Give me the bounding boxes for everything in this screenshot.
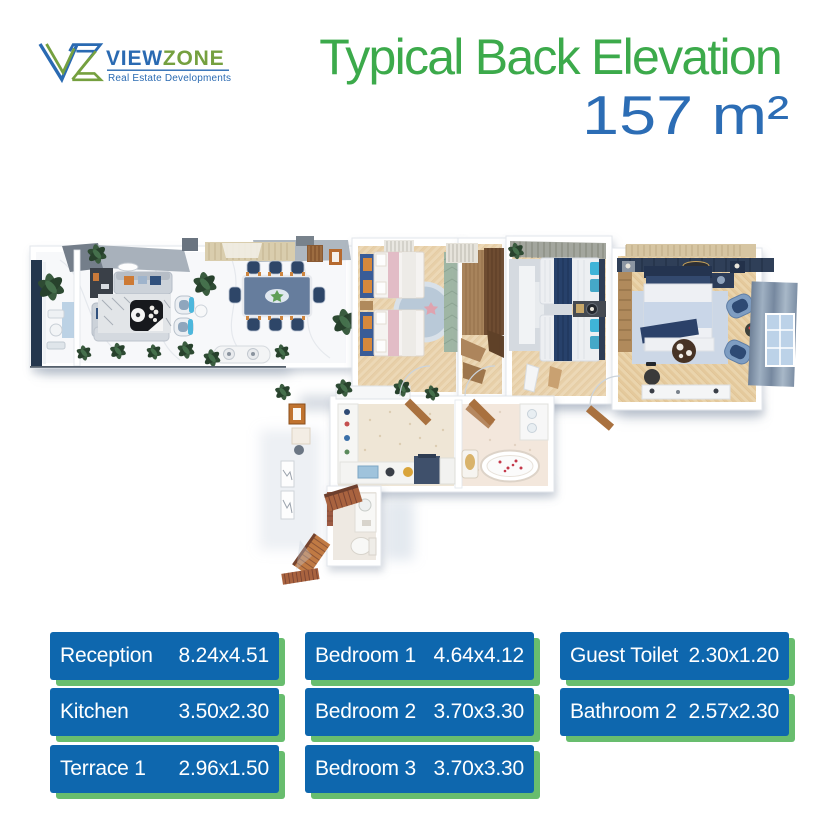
svg-text:Real Estate Developments: Real Estate Developments: [108, 73, 231, 84]
svg-text:VIEWZONE: VIEWZONE: [106, 47, 224, 70]
